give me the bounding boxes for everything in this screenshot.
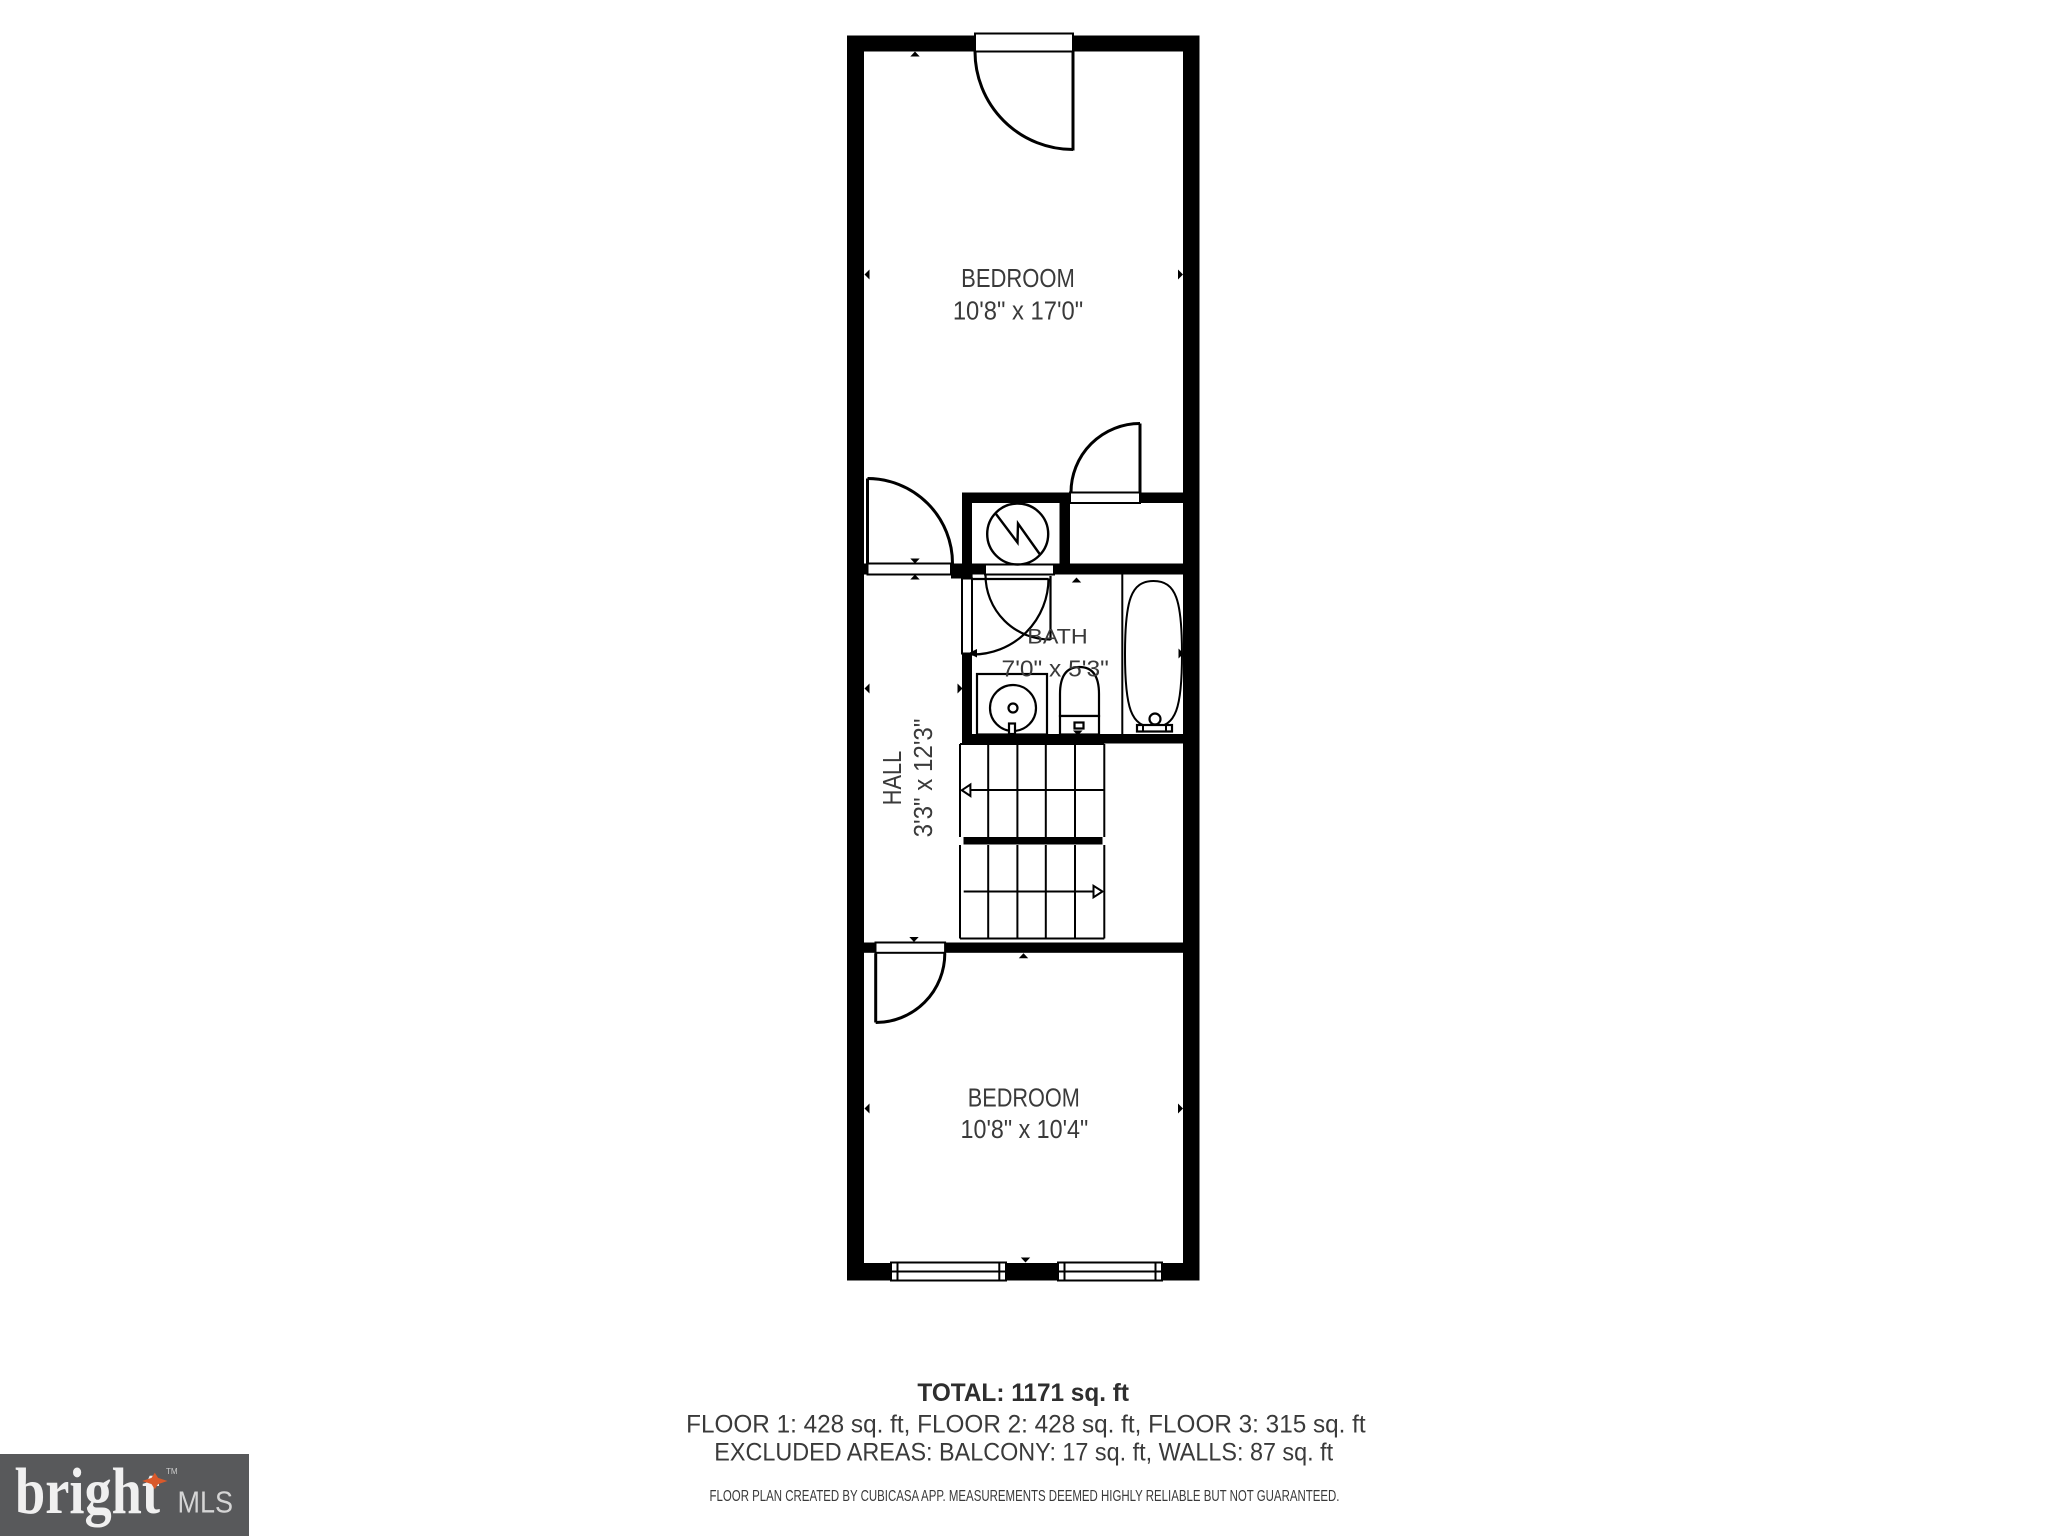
svg-text:bright: bright bbox=[15, 1455, 160, 1528]
svg-text:10'8" x 10'4": 10'8" x 10'4" bbox=[961, 1116, 1089, 1144]
svg-text:FLOOR PLAN CREATED BY CUBICASA: FLOOR PLAN CREATED BY CUBICASA APP. MEAS… bbox=[710, 1488, 1340, 1505]
svg-text:10'8" x 17'0": 10'8" x 17'0" bbox=[953, 298, 1083, 326]
svg-text:BEDROOM: BEDROOM bbox=[961, 265, 1075, 293]
svg-text:3'3" x 12'3": 3'3" x 12'3" bbox=[910, 719, 938, 838]
svg-text:EXCLUDED AREAS: BALCONY: 17 sq: EXCLUDED AREAS: BALCONY: 17 sq. ft, WALL… bbox=[714, 1438, 1333, 1466]
svg-text:HALL: HALL bbox=[879, 751, 907, 805]
svg-text:MLS: MLS bbox=[178, 1485, 234, 1520]
svg-text:7'0" x 5'3": 7'0" x 5'3" bbox=[1002, 656, 1109, 682]
svg-text:BATH: BATH bbox=[1027, 626, 1087, 649]
svg-text:BEDROOM: BEDROOM bbox=[968, 1085, 1080, 1113]
svg-text:TM: TM bbox=[166, 1467, 178, 1476]
svg-text:TOTAL: 1171 sq. ft: TOTAL: 1171 sq. ft bbox=[917, 1379, 1129, 1407]
svg-text:FLOOR 1: 428 sq. ft, FLOOR 2:: FLOOR 1: 428 sq. ft, FLOOR 2: 428 sq. ft… bbox=[686, 1411, 1366, 1439]
